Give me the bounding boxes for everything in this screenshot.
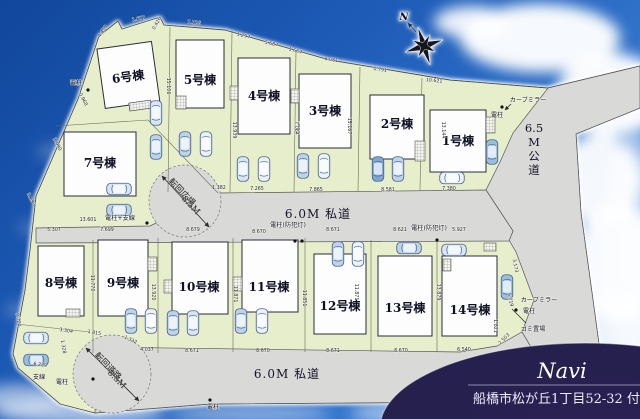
car	[237, 157, 249, 182]
car	[352, 242, 364, 267]
road-label-right-4: 道	[528, 163, 540, 177]
road-label-bottom: 6.0M 私道	[254, 367, 320, 381]
building-4: 4号棟	[238, 58, 290, 134]
building-label: 3号棟	[309, 103, 342, 118]
dim-label: 13.601	[80, 217, 97, 223]
pole-label-top-right: 電柱	[491, 111, 503, 119]
building-label: 2号棟	[381, 116, 414, 131]
navi-address: 船橋市松が丘1丁目52-32 付近	[473, 391, 640, 407]
dim-label: 8.671	[326, 227, 340, 233]
car	[397, 242, 422, 254]
car	[297, 154, 309, 179]
building-label: 10号棟	[179, 279, 221, 294]
dim-label: 13.939	[231, 122, 237, 139]
pole-dot	[86, 88, 89, 91]
dim-label: 1.821	[492, 319, 498, 333]
pole-dot	[300, 239, 303, 242]
road-label-right-3: 公	[528, 149, 540, 163]
building-label: 13号棟	[385, 300, 427, 315]
building-8: 8号棟	[38, 246, 84, 316]
car	[150, 135, 162, 160]
dim-label: 15.106	[165, 78, 171, 95]
dim-label: 7.380	[442, 186, 456, 192]
building-9: 9号棟	[98, 240, 148, 316]
dim-label: 11.871	[232, 286, 238, 303]
compass-north-label: N	[398, 12, 409, 23]
building-label: 5号棟	[184, 72, 217, 87]
guy-wire-label: 支線	[33, 373, 45, 381]
dim-label: 6.540	[457, 347, 471, 353]
car	[486, 140, 498, 165]
car	[167, 311, 179, 336]
car	[392, 157, 404, 182]
dim-label: 8.670	[252, 229, 266, 235]
building-label: 4号棟	[248, 88, 281, 103]
building-label: 9号棟	[107, 275, 140, 290]
pole-label: 電柱	[70, 79, 82, 87]
dim-label: 8.670	[394, 348, 408, 354]
pole-dot	[293, 239, 296, 242]
car	[150, 101, 162, 126]
pole-dot	[208, 398, 211, 401]
car	[442, 244, 467, 256]
building-13: 13号棟	[378, 256, 432, 336]
dim-label: 8.621	[393, 227, 407, 233]
building-1: 1号棟	[430, 110, 486, 172]
dim-label: 13.920	[150, 284, 156, 301]
pole-label-bottom-1: 電柱	[207, 403, 219, 411]
dim-label: 7.699	[100, 227, 114, 233]
pole-dot	[500, 105, 503, 108]
car	[187, 311, 199, 336]
road-label-right-1: 6.5	[525, 121, 543, 135]
pole-security-label-left: 電柱(防犯灯)	[270, 221, 306, 229]
pole-label-bottom-left: 電柱	[56, 378, 68, 386]
car	[440, 172, 465, 184]
car	[372, 157, 384, 182]
navi-title: Navi	[536, 359, 586, 383]
dim-label: 8.670	[256, 348, 270, 354]
pole-dot	[514, 308, 517, 311]
pole-guy-label: 電柱+支線	[105, 214, 135, 222]
dim-label: 13.879	[435, 284, 441, 301]
dim-label: 5.307	[47, 227, 61, 233]
dim-label: 8.671	[326, 348, 340, 354]
dim-label: 8.671	[185, 348, 199, 354]
car	[256, 309, 268, 334]
dim-label: 7.064	[293, 121, 299, 135]
dim-label: 15.167	[346, 118, 352, 135]
pole-label-right: 電柱	[523, 307, 535, 315]
building-label: 1号棟	[442, 133, 475, 148]
car	[24, 332, 49, 344]
building-3: 3号棟	[299, 74, 351, 148]
pole-dot	[91, 377, 94, 380]
curve-mirror-label-top: カーブミラー	[510, 96, 547, 104]
dim-label: 11.770	[89, 275, 95, 292]
car	[318, 154, 330, 179]
pole-dot	[435, 238, 438, 241]
dim-label: 11.871	[353, 284, 359, 301]
car	[258, 157, 270, 182]
car	[179, 132, 191, 157]
dim-label: 8.581	[381, 187, 395, 193]
dim-label: 13.144	[440, 122, 446, 139]
car	[235, 309, 247, 334]
dim-label: 11.851	[301, 290, 307, 307]
dim-label: 5.927	[452, 227, 466, 233]
screenshot-stage: 6号棟 5号棟 4号棟 3号棟 2号棟 1号棟 7号棟 8号棟	[0, 0, 640, 419]
dim-label: 7.265	[250, 186, 264, 192]
car	[332, 242, 344, 267]
building-11: 11号棟	[242, 240, 298, 312]
car	[125, 309, 137, 334]
pole-security-label-right: 電柱(防犯灯)	[411, 224, 447, 232]
site-plan: 6号棟 5号棟 4号棟 3号棟 2号棟 1号棟 7号棟 8号棟	[0, 0, 640, 419]
road-label-mid: 6.0M 私道	[285, 207, 351, 221]
dim-label: 7.865	[309, 187, 323, 193]
dim-label: 4.037	[140, 347, 154, 353]
dim-label: 1.382	[212, 185, 226, 191]
road-label-right-2: M	[528, 135, 540, 149]
building-label: 8号棟	[45, 275, 78, 290]
dim-label: 8.679	[186, 227, 200, 233]
building-10: 10号棟	[172, 242, 228, 314]
pole-dot	[145, 221, 148, 224]
building-label: 11号棟	[249, 279, 291, 294]
car	[145, 309, 157, 334]
curve-mirror-label-right: カーブミラー	[521, 296, 558, 304]
car	[200, 132, 212, 157]
trash-label: ゴミ置場	[521, 325, 546, 333]
building-label: 14号棟	[450, 302, 492, 317]
building-label: 7号棟	[84, 155, 117, 170]
car	[107, 183, 132, 195]
